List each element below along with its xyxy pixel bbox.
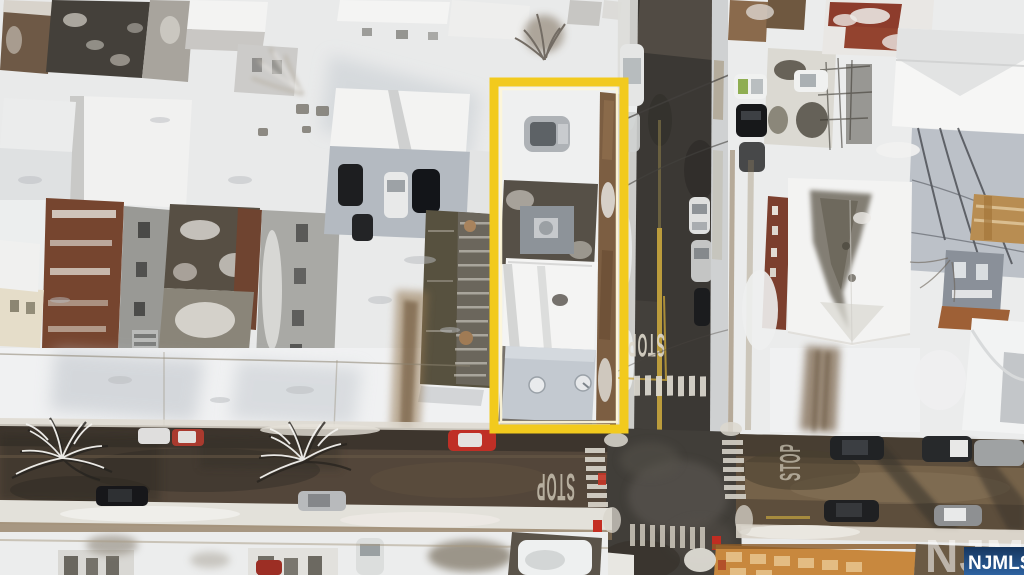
svg-text:STOP: STOP — [774, 443, 806, 481]
svg-text:STOP: STOP — [627, 326, 665, 362]
svg-text:NJMLS: NJMLS — [968, 553, 1024, 574]
svg-text:STOP: STOP — [536, 466, 575, 509]
